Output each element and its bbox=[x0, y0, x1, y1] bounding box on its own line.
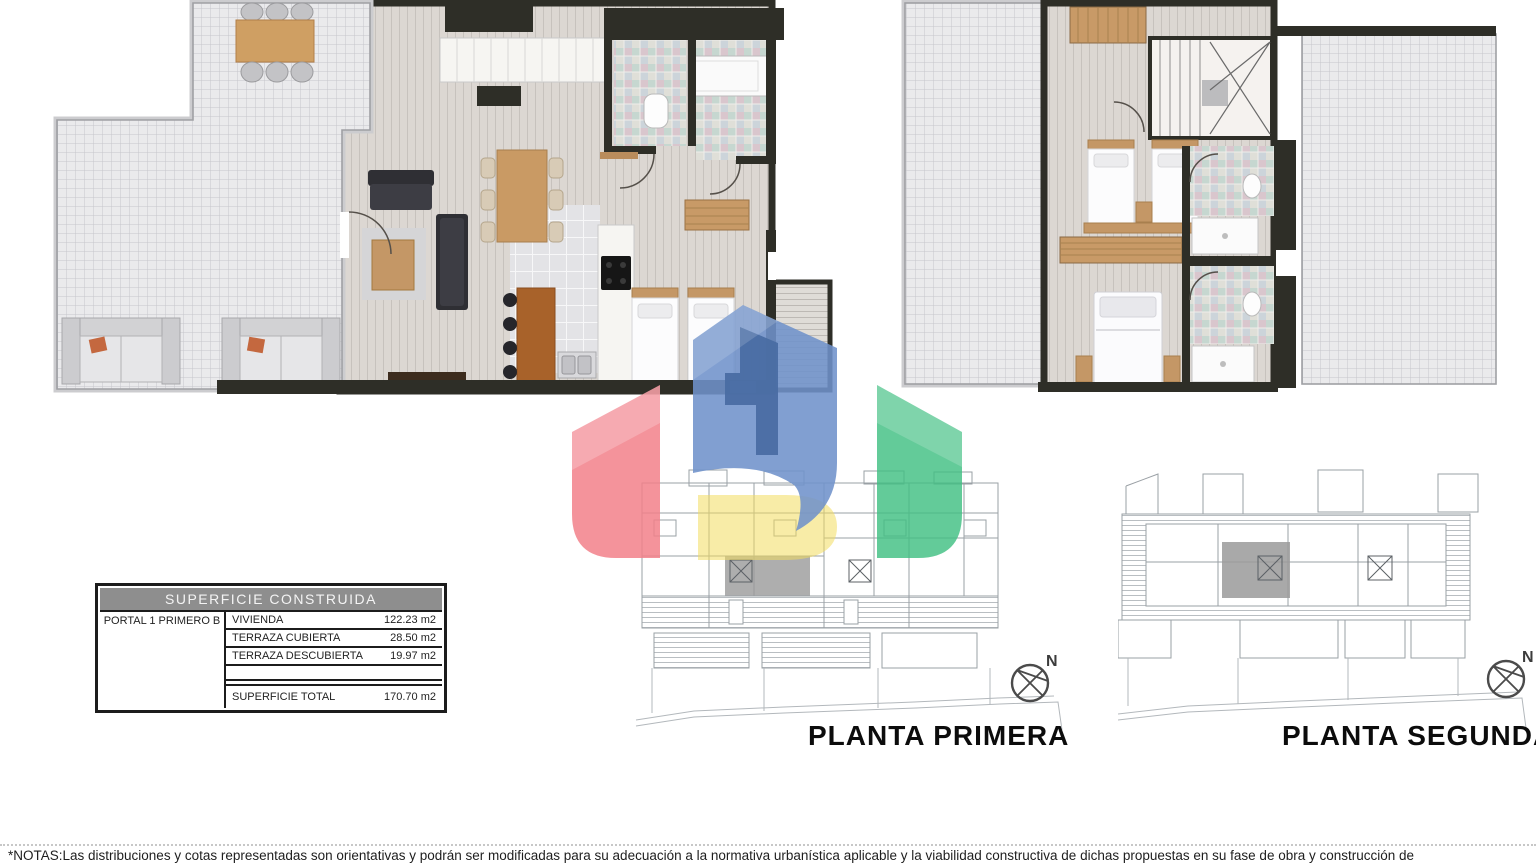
row-label: VIVIENDA bbox=[232, 614, 283, 626]
table-row: TERRAZA CUBIERTA 28.50 m2 bbox=[226, 630, 442, 648]
kitchen-island bbox=[517, 288, 555, 386]
staircase bbox=[1150, 38, 1272, 138]
terrace-dining-table bbox=[236, 3, 314, 82]
bathroom-1-floor bbox=[614, 40, 686, 146]
total-value: 170.70 m2 bbox=[384, 691, 436, 703]
table-row: TERRAZA DESCUBIERTA 19.97 m2 bbox=[226, 648, 442, 666]
total-label: SUPERFICIE TOTAL bbox=[232, 691, 335, 703]
row-value: 28.50 m2 bbox=[390, 632, 436, 644]
toilet bbox=[1243, 174, 1261, 198]
row-label: TERRAZA CUBIERTA bbox=[232, 632, 340, 644]
area-table-title: SUPERFICIE CONSTRUIDA bbox=[100, 588, 442, 610]
highlighted-unit bbox=[1222, 542, 1290, 598]
north-label: N bbox=[1046, 653, 1058, 670]
dining-table bbox=[481, 150, 563, 242]
table-row-empty bbox=[226, 666, 442, 681]
row-label: TERRAZA DESCUBIERTA bbox=[232, 650, 363, 662]
kitchen-counter bbox=[440, 38, 612, 82]
terrace-right bbox=[1302, 34, 1496, 384]
terrace-sofa-2 bbox=[222, 318, 340, 384]
row-value: 19.97 m2 bbox=[390, 650, 436, 662]
north-label: N bbox=[1522, 649, 1534, 666]
row-value: 122.23 m2 bbox=[384, 614, 436, 626]
compass-icon: N bbox=[1480, 646, 1536, 706]
floor-plan-second-level bbox=[898, 0, 1502, 392]
bench bbox=[1060, 237, 1182, 263]
toilet bbox=[1243, 292, 1261, 316]
nightstand bbox=[1136, 202, 1152, 222]
table-row: VIVIENDA 122.23 m2 bbox=[226, 612, 442, 630]
area-table: SUPERFICIE CONSTRUIDA PORTAL 1 PRIMERO B… bbox=[95, 583, 447, 713]
cooktop bbox=[601, 256, 631, 290]
site-plan-segunda bbox=[1118, 466, 1536, 736]
table-row-total: SUPERFICIE TOTAL 170.70 m2 bbox=[226, 686, 442, 708]
toilet bbox=[644, 94, 668, 128]
logo-red-shape bbox=[572, 385, 660, 558]
plan-sheet: { "sheet": { "north_label": "N", "notes"… bbox=[0, 0, 1536, 864]
bed-twin-1 bbox=[1088, 140, 1134, 223]
divider bbox=[0, 844, 1536, 846]
area-table-unit: PORTAL 1 PRIMERO B bbox=[100, 612, 226, 708]
coffee-table bbox=[372, 240, 414, 290]
logo-watermark bbox=[558, 295, 968, 565]
caption-planta-primera: PLANTA PRIMERA bbox=[808, 720, 1069, 752]
logo-green-shape bbox=[877, 385, 962, 558]
bathroom-1-floor bbox=[1190, 146, 1274, 216]
compass-icon: N bbox=[1004, 650, 1068, 710]
notes-text: *NOTAS:Las distribuciones y cotas repres… bbox=[8, 848, 1536, 863]
terrace-sofa-1 bbox=[62, 318, 180, 384]
dresser bbox=[685, 200, 749, 230]
caption-planta-segunda: PLANTA SEGUNDA bbox=[1282, 720, 1536, 752]
